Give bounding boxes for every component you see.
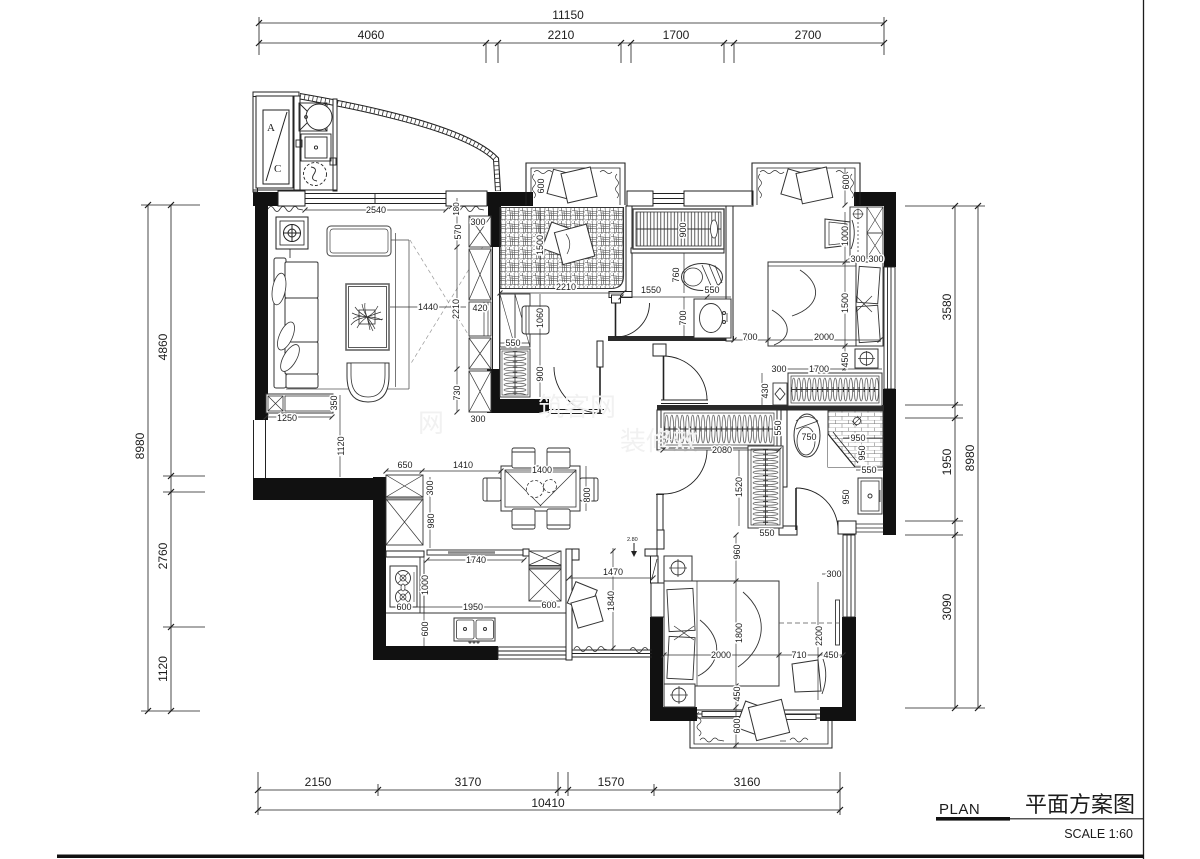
svg-text:2000: 2000 (814, 332, 834, 342)
svg-text:8980: 8980 (963, 444, 977, 471)
svg-text:2540: 2540 (366, 205, 386, 215)
svg-text:1500: 1500 (840, 293, 850, 313)
svg-text:10410: 10410 (531, 796, 565, 810)
svg-text:装修效: 装修效 (620, 426, 698, 456)
svg-text:300: 300 (771, 364, 786, 374)
svg-text:3170: 3170 (455, 775, 482, 789)
svg-text:3090: 3090 (940, 593, 954, 620)
svg-text:C: C (274, 163, 281, 175)
svg-text:1410: 1410 (453, 460, 473, 470)
svg-text:网: 网 (418, 408, 444, 438)
svg-text:SCALE 1:60: SCALE 1:60 (1064, 827, 1133, 841)
svg-text:760: 760 (671, 267, 681, 282)
svg-text:2080: 2080 (712, 445, 732, 455)
svg-text:700: 700 (742, 332, 757, 342)
svg-text:300: 300 (425, 480, 435, 495)
svg-text:350: 350 (329, 395, 339, 410)
svg-text:700: 700 (678, 310, 688, 325)
svg-text:2210: 2210 (548, 28, 575, 42)
svg-text:730: 730 (452, 385, 462, 400)
svg-text:8980: 8980 (133, 432, 147, 459)
svg-text:600: 600 (841, 174, 851, 189)
svg-text:1250: 1250 (277, 413, 297, 423)
svg-text:300: 300 (470, 414, 485, 424)
svg-text:600: 600 (536, 178, 546, 193)
svg-text:600: 600 (732, 718, 742, 733)
svg-text:600: 600 (541, 600, 556, 610)
svg-text:3160: 3160 (734, 775, 761, 789)
svg-text:980: 980 (426, 513, 436, 528)
svg-text:2760: 2760 (156, 542, 170, 569)
svg-text:1000: 1000 (420, 575, 430, 595)
svg-text:2700: 2700 (795, 28, 822, 42)
svg-text:900: 900 (535, 366, 545, 381)
svg-text:A: A (267, 122, 275, 134)
svg-text:300: 300 (850, 254, 865, 264)
svg-text:800: 800 (582, 487, 592, 502)
svg-text:1120: 1120 (156, 656, 170, 682)
svg-text:300: 300 (826, 569, 841, 579)
svg-text:950: 950 (857, 445, 867, 460)
svg-text:600: 600 (420, 621, 430, 636)
svg-text:1470: 1470 (603, 567, 623, 577)
svg-text:570: 570 (453, 224, 463, 239)
svg-text:450: 450 (823, 650, 838, 660)
svg-text:710: 710 (791, 650, 806, 660)
svg-text:2150: 2150 (305, 775, 332, 789)
svg-text:1740: 1740 (466, 555, 486, 565)
svg-text:1000: 1000 (840, 226, 850, 246)
svg-text:1060: 1060 (535, 308, 545, 328)
svg-text:450: 450 (840, 352, 850, 367)
svg-text:1500: 1500 (535, 235, 545, 255)
svg-text:PLAN: PLAN (939, 801, 980, 818)
svg-text:1700: 1700 (663, 28, 690, 42)
svg-text:1840: 1840 (606, 591, 616, 611)
svg-text:900: 900 (678, 222, 688, 237)
svg-text:550: 550 (505, 338, 520, 348)
svg-text:3580: 3580 (940, 293, 954, 320)
svg-text:550: 550 (704, 285, 719, 295)
svg-text:300: 300 (470, 217, 485, 227)
svg-text:450: 450 (732, 686, 742, 701)
svg-text:550: 550 (861, 465, 876, 475)
svg-text:4860: 4860 (156, 333, 170, 360)
svg-text:1700: 1700 (809, 364, 829, 374)
svg-text:950: 950 (841, 489, 851, 504)
svg-text:1950: 1950 (463, 602, 483, 612)
svg-text:筑客网: 筑客网 (538, 392, 616, 422)
svg-text:2.80: 2.80 (627, 537, 638, 543)
svg-text:1400: 1400 (532, 465, 552, 475)
svg-text:2210: 2210 (451, 299, 461, 319)
svg-text:600: 600 (396, 602, 411, 612)
svg-text:420: 420 (472, 303, 487, 313)
svg-text:1120: 1120 (336, 436, 346, 455)
svg-text:11150: 11150 (552, 8, 584, 22)
svg-text:2000: 2000 (711, 650, 731, 660)
svg-text:180: 180 (452, 202, 461, 216)
svg-text:750: 750 (801, 432, 816, 442)
svg-text:1440: 1440 (418, 302, 438, 312)
svg-text:950: 950 (850, 433, 865, 443)
svg-text:1800: 1800 (734, 623, 744, 643)
svg-text:2210: 2210 (556, 282, 576, 292)
svg-text:2200: 2200 (814, 626, 824, 646)
svg-text:4060: 4060 (358, 28, 385, 42)
svg-text:1550: 1550 (641, 285, 661, 295)
svg-text:1520: 1520 (734, 477, 744, 497)
svg-text:960: 960 (732, 544, 742, 559)
svg-text:1570: 1570 (598, 775, 625, 789)
svg-text:550: 550 (759, 528, 774, 538)
svg-text:平面方案图: 平面方案图 (1025, 792, 1135, 817)
svg-text:300: 300 (868, 254, 883, 264)
svg-text:1950: 1950 (940, 448, 954, 475)
svg-text:550: 550 (773, 420, 783, 435)
svg-text:650: 650 (397, 460, 412, 470)
svg-text:430: 430 (760, 383, 770, 398)
